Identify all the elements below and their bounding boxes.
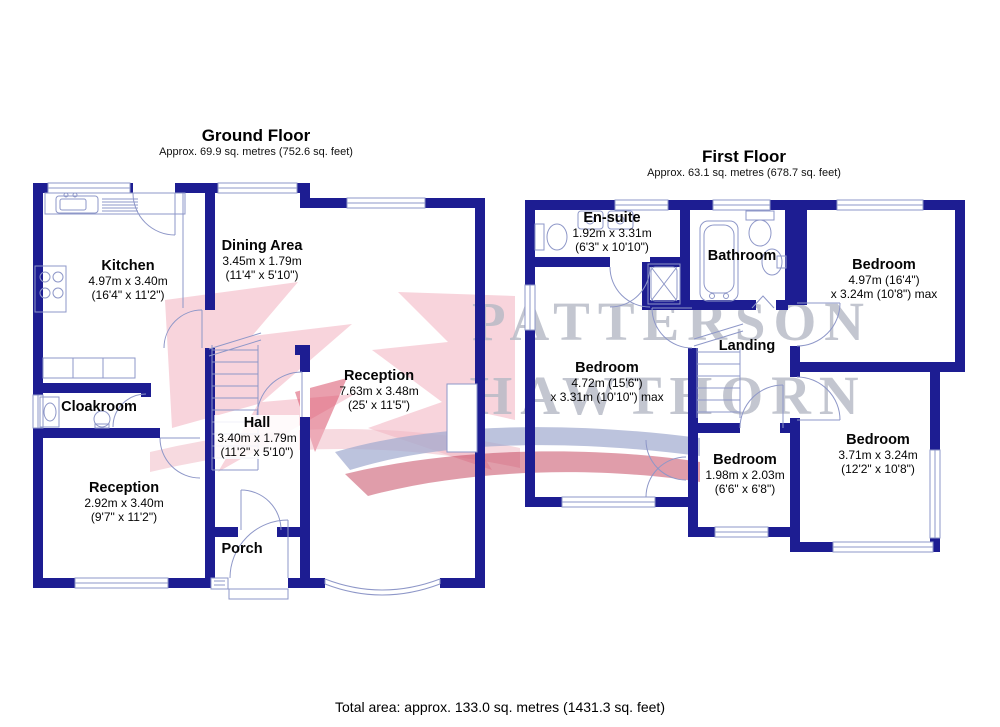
- room-label-bedroom-bottom: Bedroom 3.71m x 3.24m (12'2" x 10'8"): [838, 432, 917, 476]
- wall: [790, 346, 800, 377]
- wall: [785, 210, 807, 305]
- wall: [205, 183, 215, 310]
- window: [75, 578, 168, 588]
- window: [930, 450, 940, 538]
- room-label-reception-front: Reception 2.92m x 3.40m (9'7" x 11'2"): [84, 480, 163, 524]
- window: [713, 200, 770, 210]
- window: [33, 395, 43, 428]
- window: [615, 200, 668, 210]
- total-area-text: Total area: approx. 133.0 sq. metres (14…: [335, 699, 665, 715]
- wall: [141, 383, 151, 397]
- wall: [688, 423, 698, 537]
- floor-name: Ground Floor: [159, 126, 353, 145]
- window: [837, 200, 923, 210]
- wall: [33, 383, 151, 393]
- wall: [210, 527, 238, 537]
- window: [562, 497, 655, 507]
- window: [715, 527, 768, 537]
- room-label-bedroom-small: Bedroom 1.98m x 2.03m (6'6" x 6'8"): [705, 452, 784, 496]
- sink-fixture: [56, 193, 138, 213]
- room-label-bedroom-top: Bedroom 4.97m (16'4") x 3.24m (10'8") ma…: [831, 257, 938, 301]
- first-floor-title: First Floor Approx. 63.1 sq. metres (678…: [647, 147, 841, 180]
- wall: [780, 423, 795, 433]
- room-label-bathroom: Bathroom: [708, 248, 776, 264]
- ground-floor-title: Ground Floor Approx. 69.9 sq. metres (75…: [159, 126, 353, 159]
- wall: [798, 362, 965, 372]
- window: [218, 183, 297, 193]
- room-label-porch: Porch: [221, 541, 262, 557]
- room-label-kitchen: Kitchen 4.97m x 3.40m (16'4" x 11'2"): [88, 258, 167, 302]
- room-label-reception-main: Reception 7.63m x 3.48m (25' x 11'5"): [339, 368, 418, 412]
- wall: [680, 210, 690, 310]
- wall: [205, 348, 215, 588]
- wall: [440, 578, 485, 588]
- wall: [525, 200, 535, 507]
- bay-window: [325, 579, 440, 595]
- door-arc: [241, 490, 281, 530]
- window: [48, 183, 130, 193]
- floor-name: First Floor: [647, 147, 841, 166]
- window: [525, 285, 535, 330]
- room-label-landing: Landing: [719, 338, 775, 354]
- wall: [535, 257, 610, 267]
- window: [347, 198, 425, 208]
- room-label-hall: Hall 3.40m x 1.79m (11'2" x 5'10"): [214, 415, 299, 459]
- room-label-cloakroom: Cloakroom: [61, 399, 137, 415]
- room-label-bedroom-left: Bedroom 4.72m (15'6") x 3.31m (10'10") m…: [550, 360, 663, 404]
- toilet-fixture: [746, 211, 774, 246]
- floorplan-canvas: PATTERSON HAWTHORN: [0, 0, 1000, 727]
- floorplan-page: PATTERSON HAWTHORN: [0, 0, 1000, 727]
- room-label-ensuite: En-suite 1.92m x 3.31m (6'3" x 10'10"): [572, 210, 651, 254]
- chimney-breast: [447, 384, 477, 452]
- wall: [33, 428, 160, 438]
- wall: [776, 300, 788, 310]
- wall: [955, 200, 965, 372]
- room-label-dining-area: Dining Area 3.45m x 1.79m (11'4" x 5'10"…: [219, 238, 305, 282]
- toilet-fixture: [535, 224, 567, 250]
- window: [833, 542, 933, 552]
- floor-area: Approx. 69.9 sq. metres (752.6 sq. feet): [159, 145, 353, 159]
- floor-area: Approx. 63.1 sq. metres (678.7 sq. feet): [647, 166, 841, 180]
